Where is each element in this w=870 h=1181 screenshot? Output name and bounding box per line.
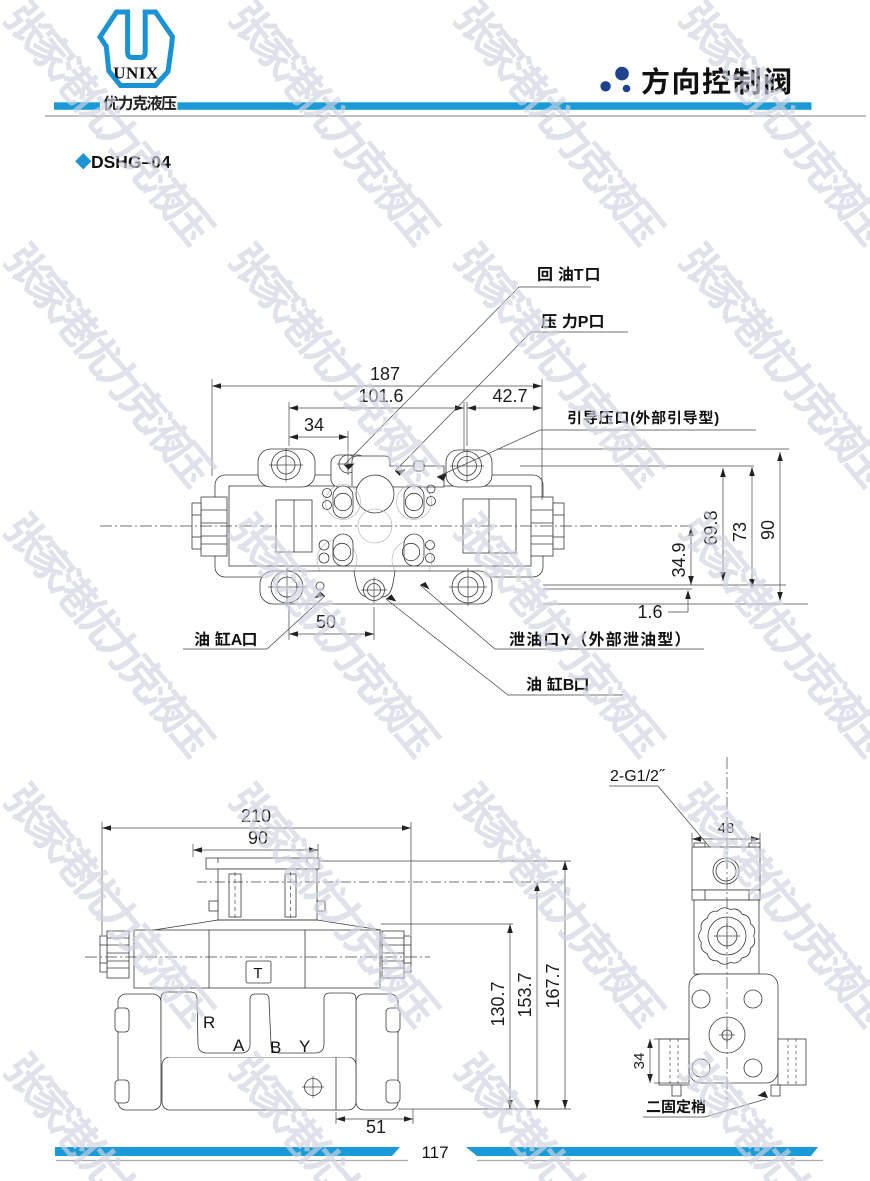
svg-text:153.7: 153.7 — [515, 972, 535, 1017]
svg-text:(: ( — [630, 410, 635, 427]
svg-text:Y: Y — [299, 1037, 310, 1056]
svg-text:34: 34 — [304, 415, 324, 435]
svg-text:R: R — [203, 1013, 215, 1032]
svg-text:T: T — [253, 965, 262, 982]
svg-text:117: 117 — [421, 1143, 448, 1162]
svg-text:T: T — [574, 267, 584, 284]
svg-text:): ) — [714, 410, 719, 427]
svg-text:130.7: 130.7 — [488, 981, 508, 1026]
svg-text:34: 34 — [631, 1053, 648, 1070]
svg-text:51: 51 — [366, 1117, 386, 1137]
svg-text:34.9: 34.9 — [669, 542, 689, 577]
svg-text:A: A — [231, 632, 243, 649]
svg-text:A: A — [233, 1036, 245, 1055]
svg-text:2-G1/2˝: 2-G1/2˝ — [610, 768, 666, 785]
svg-text:90: 90 — [758, 520, 778, 540]
svg-text:P: P — [578, 314, 589, 331]
svg-text:B: B — [270, 1038, 281, 1057]
svg-text:73: 73 — [730, 522, 750, 542]
svg-text:167.7: 167.7 — [543, 963, 563, 1008]
svg-text:UNIX: UNIX — [113, 64, 159, 83]
svg-text:187: 187 — [370, 364, 400, 384]
svg-text:42.7: 42.7 — [492, 386, 527, 406]
svg-text:1.6: 1.6 — [637, 602, 662, 622]
